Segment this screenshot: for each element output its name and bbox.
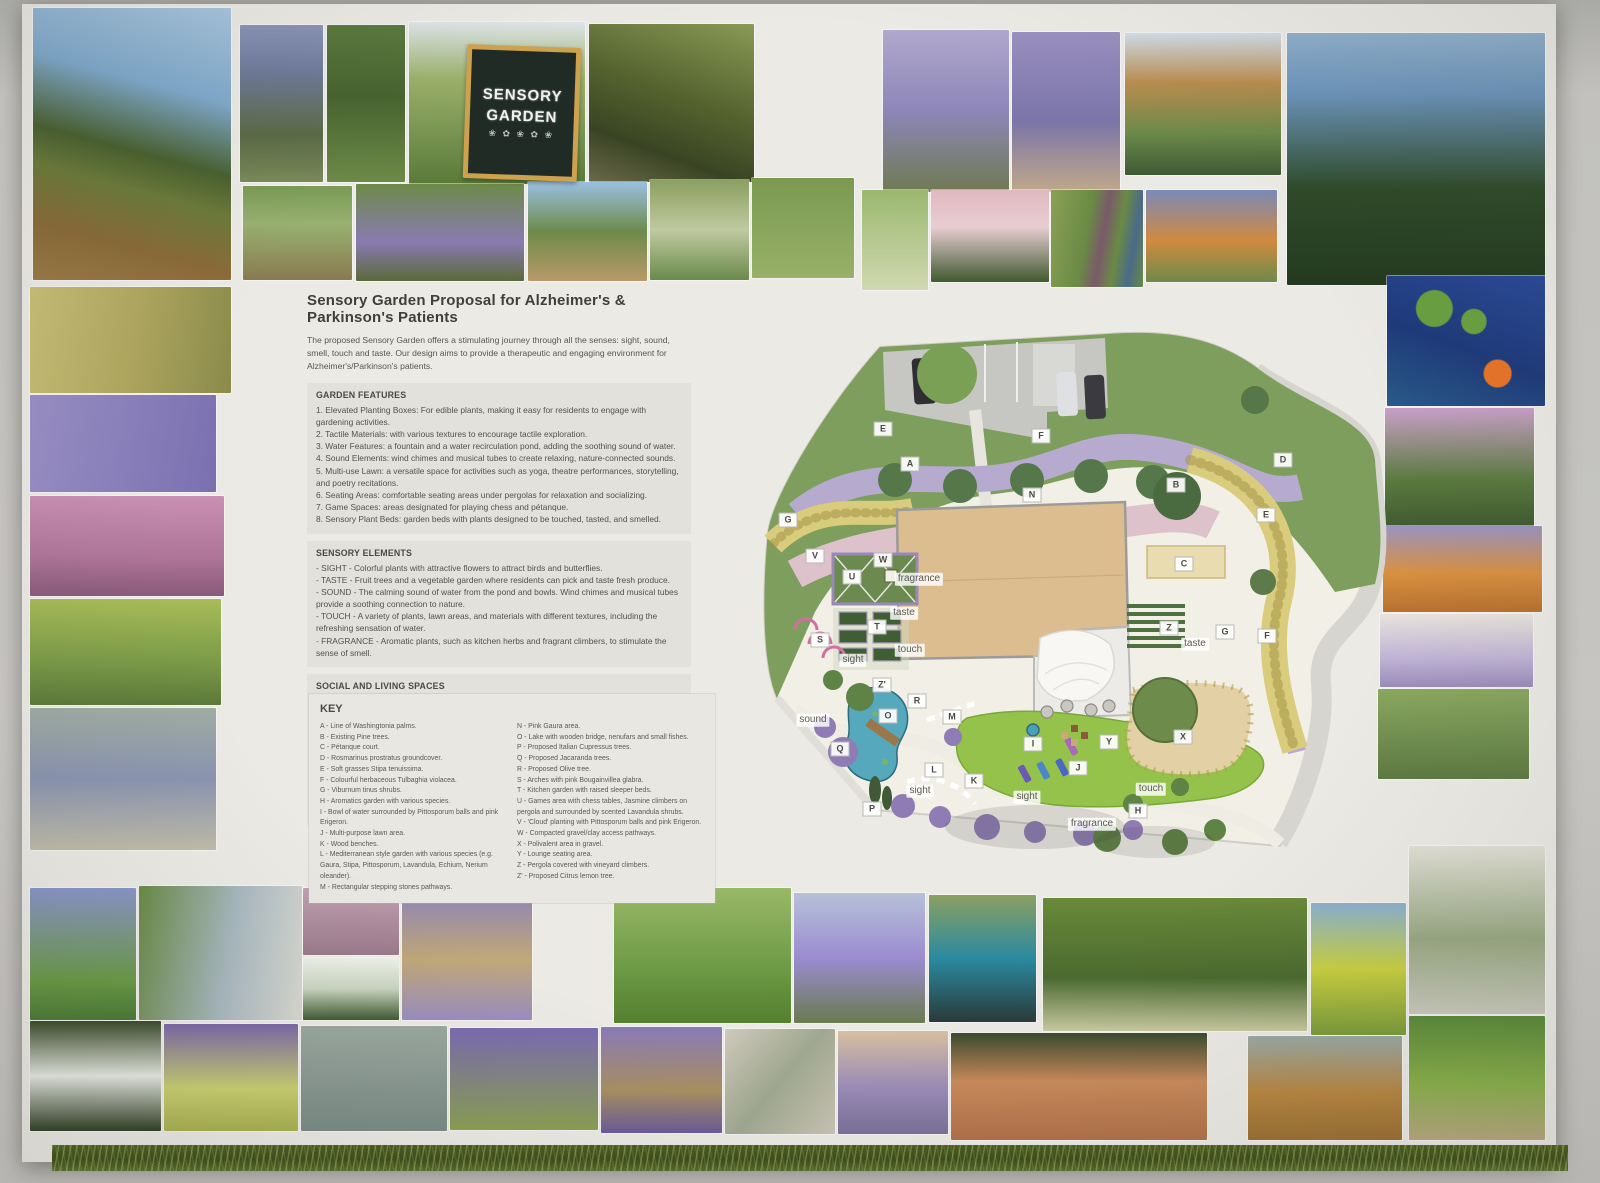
plan-label-G: G — [1216, 625, 1235, 640]
list-item: P - Proposed Italian Cupressus trees. — [517, 743, 704, 754]
list-item: SIGHT - Colorful plants with attractive … — [316, 562, 682, 574]
plan-sense-label-sight: sight — [1013, 791, 1040, 804]
list-item: 5. Multi-use Lawn: a versatile space for… — [316, 465, 682, 489]
lavender-field-rows-photo — [838, 1031, 948, 1134]
flower-planter-photo — [1146, 190, 1277, 282]
list-item: J - Multi-purpose lawn area. — [320, 829, 507, 840]
plan-sense-label-sight: sight — [906, 785, 933, 798]
citrus-orchard-bench-photo — [1043, 898, 1307, 1031]
mounded-garden-photo — [1378, 689, 1529, 779]
touching-lavender-photo — [1012, 32, 1120, 192]
petanque-court-photo — [951, 1033, 1207, 1140]
sensory-garden-chalkboard: SENSORY GARDEN ❀ ✿ ❀ ✿ ❀ — [463, 44, 582, 182]
garden-features-heading: GARDEN FEATURES — [316, 390, 682, 400]
list-item: R - Proposed Olive tree. — [517, 765, 704, 776]
plan-label-B: B — [1167, 478, 1186, 493]
list-item: 2. Tactile Materials: with various textu… — [316, 428, 682, 440]
plan-sense-label-sight: sight — [839, 654, 866, 667]
chalk-plants-doodle: ❀ ✿ ❀ ✿ ❀ — [488, 127, 554, 140]
sensory-elements-heading: SENSORY ELEMENTS — [316, 548, 682, 558]
list-item: SOUND - The calming sound of water from … — [316, 586, 682, 610]
list-item: X - Polivalent area in gravel. — [517, 840, 704, 851]
lemons-closeup-photo — [1311, 903, 1406, 1035]
site-plan: EAFNBDECVWUTSGZGFZ'ROMQLKIYJXHPfragrance… — [735, 282, 1395, 874]
lavender-dome-photo — [1380, 614, 1533, 687]
list-item: O - Lake with wooden bridge, nenufars an… — [517, 733, 704, 744]
list-item: 7. Game Spaces: areas designated for pla… — [316, 501, 682, 513]
agapanthus-photo — [30, 888, 136, 1020]
jasmine-flowers-photo — [303, 958, 399, 1020]
elevated-planter-boxes-photo — [528, 182, 647, 281]
vegetable-beds-photo — [1409, 1016, 1545, 1140]
pergola-lakeside-photo — [1125, 33, 1281, 175]
plan-label-E: E — [1257, 508, 1276, 523]
list-item: 3. Water Features: a fountain and a wate… — [316, 440, 682, 452]
plan-sense-label-touch: touch — [1136, 783, 1166, 796]
stipa-grass-photo — [30, 287, 231, 393]
list-item: 1. Elevated Planting Boxes: For edible p… — [316, 404, 682, 428]
plan-sense-label-taste: taste — [890, 607, 918, 620]
plan-label-Z: Z — [1160, 621, 1179, 636]
site-plan-drawing — [735, 282, 1395, 872]
list-item: 6. Seating Areas: comfortable seating ar… — [316, 489, 682, 501]
mound-shrubs-photo — [30, 599, 221, 705]
list-item: TOUCH - A variety of plants, lawn areas,… — [316, 610, 682, 634]
plan-label-N: N — [1023, 488, 1042, 503]
plan-label-A: A — [901, 457, 920, 472]
raised-beds-photo — [589, 24, 754, 182]
pond-meadow-photo — [752, 178, 854, 278]
water-bowl-iris-photo — [240, 25, 323, 182]
social-living-heading: SOCIAL AND LIVING SPACES — [316, 681, 682, 691]
key-column-2: N - Pink Gaura area.O - Lake with wooden… — [517, 722, 704, 893]
plan-sense-label-fragrance: fragrance — [1068, 818, 1116, 831]
plan-label-X: X — [1174, 730, 1193, 745]
plan-sense-label-fragrance: fragrance — [895, 573, 943, 586]
list-item: T - Kitchen garden with raised sleeper b… — [517, 786, 704, 797]
white-hedge-photo — [30, 1021, 161, 1131]
footer-wave-graphic — [52, 1145, 1568, 1171]
list-item: E - Soft grasses Stipa tenuissima. — [320, 765, 507, 776]
plan-label-Y: Y — [1100, 735, 1119, 750]
pink-heather-photo — [30, 496, 224, 596]
plan-label-T: T — [868, 620, 887, 635]
list-item: M - Rectangular stepping stones pathways… — [320, 883, 507, 894]
plan-label-R: R — [908, 694, 927, 709]
plan-sense-label-taste: taste — [1181, 638, 1209, 651]
lavender-closeup-photo — [30, 395, 216, 492]
plan-label-Z-prime: Z' — [873, 678, 892, 693]
poster: SENSORY GARDEN ❀ ✿ ❀ ✿ ❀ Sensory Garden … — [22, 4, 1556, 1162]
chalkboard-line-2: GARDEN — [486, 106, 558, 125]
garden-features-section: GARDEN FEATURES 1. Elevated Planting Box… — [307, 383, 691, 534]
stipa-salvia-photo — [164, 1024, 298, 1131]
plan-key-legend: KEY A - Line of Washingtonia palms.B - E… — [309, 694, 715, 903]
gardening-planters-photo — [243, 186, 352, 280]
list-item: G - Viburnum tinus shrubs. — [320, 786, 507, 797]
lavender-path-photo — [402, 886, 532, 1020]
glass-wind-chimes-photo — [1051, 190, 1143, 287]
list-item: 8. Sensory Plant Beds: garden beds with … — [316, 513, 682, 525]
westringia-shrub-photo — [301, 1026, 447, 1131]
plan-sense-label-sound: sound — [796, 714, 829, 727]
meadow-flowers-photo — [650, 180, 749, 280]
plan-label-K: K — [965, 774, 984, 789]
plan-label-L: L — [925, 763, 944, 778]
plan-label-F: F — [1032, 429, 1051, 444]
plan-label-E: E — [874, 422, 893, 437]
plan-label-U: U — [843, 570, 862, 585]
plan-label-C: C — [1175, 557, 1194, 572]
list-item: H - Aromatics garden with various specie… — [320, 797, 507, 808]
rose-arch-tunnel-photo — [1385, 408, 1534, 528]
chalkboard-line-1: SENSORY — [482, 85, 562, 105]
plan-sense-label-touch: touch — [895, 644, 925, 657]
key-heading: KEY — [320, 703, 704, 715]
koi-pond-photo — [1387, 276, 1545, 406]
plan-label-O: O — [879, 709, 898, 724]
intro-paragraph: The proposed Sensory Garden offers a sti… — [307, 334, 691, 373]
jacaranda-tree-photo — [794, 893, 925, 1023]
santolina-gravel-photo — [30, 708, 216, 850]
seniors-yoga-photo — [614, 888, 791, 1023]
key-column-1: A - Line of Washingtonia palms.B - Exist… — [320, 722, 507, 893]
cypress-trees-photo — [1287, 33, 1545, 285]
kniphofia-flowers-photo — [1383, 526, 1542, 612]
stone-slab-path-photo — [725, 1029, 835, 1134]
list-item: W - Compacted gravel/clay access pathway… — [517, 829, 704, 840]
list-item: S - Arches with pink Bougainvillea glabr… — [517, 776, 704, 787]
butterfly-meadow-photo — [862, 190, 928, 290]
plan-label-F: F — [1258, 629, 1277, 644]
list-item: Z - Pergola covered with vineyard climbe… — [517, 861, 704, 872]
plan-label-G: G — [779, 513, 798, 528]
list-item: L - Mediterranean style garden with vari… — [320, 850, 507, 882]
list-item: B - Existing Pine trees. — [320, 733, 507, 744]
palm-tree-photo — [33, 8, 231, 280]
list-item: C - Pétanque court. — [320, 743, 507, 754]
list-item: Y - Lounge seating area. — [517, 850, 704, 861]
list-item: F - Colourful herbaceous Tulbaghia viola… — [320, 776, 507, 787]
wind-chime-photo — [327, 25, 405, 182]
sensory-elements-section: SENSORY ELEMENTS SIGHT - Colorful plants… — [307, 541, 691, 668]
list-item: I - Bowl of water surrounded by Pittospo… — [320, 808, 507, 829]
delphinium-garden-photo — [450, 1028, 598, 1130]
list-item: A - Line of Washingtonia palms. — [320, 722, 507, 733]
blue-water-bowl-photo — [929, 895, 1036, 1022]
plan-label-V: V — [806, 549, 825, 564]
plan-label-M: M — [943, 710, 962, 725]
olive-tree-photo — [1409, 846, 1545, 1014]
bench-lavender-photo — [601, 1027, 722, 1133]
list-item: U - Games area with chess tables, Jasmin… — [517, 797, 704, 818]
garden-features-list: 1. Elevated Planting Boxes: For edible p… — [316, 404, 682, 526]
list-item: D - Rosmarinus prostratus groundcover. — [320, 754, 507, 765]
sensory-elements-list: SIGHT - Colorful plants with attractive … — [316, 562, 682, 660]
list-item: N - Pink Gaura area. — [517, 722, 704, 733]
list-item: FRAGRANCE - Aromatic plants, such as kit… — [316, 635, 682, 659]
list-item: Q - Proposed Jacaranda trees. — [517, 754, 704, 765]
plan-label-W: W — [874, 553, 893, 568]
plan-label-J: J — [1069, 761, 1088, 776]
list-item: 4. Sound Elements: wind chimes and music… — [316, 452, 682, 464]
pink-roses-photo — [931, 190, 1049, 282]
plan-label-I: I — [1024, 737, 1043, 752]
photographed-poster-board: { "poster": { "title": "Sensory Garden P… — [0, 0, 1600, 1183]
page-title: Sensory Garden Proposal for Alzheimer's … — [307, 292, 691, 326]
plan-label-S: S — [811, 633, 830, 648]
plan-label-Q: Q — [831, 742, 850, 757]
list-item: TASTE - Fruit trees and a vegetable gard… — [316, 574, 682, 586]
list-item: K - Wood benches. — [320, 840, 507, 851]
list-item: V - 'Cloud' planting with Pittosporum ba… — [517, 818, 704, 829]
chess-table-chairs-photo — [1248, 1036, 1402, 1140]
list-item: Z' - Proposed Citrus lemon tree. — [517, 872, 704, 883]
bench-salvia-photo — [356, 184, 524, 281]
smelling-lavender-photo — [883, 30, 1009, 192]
woman-playing-chimes-photo — [139, 886, 302, 1020]
plan-label-D: D — [1274, 453, 1293, 468]
plan-label-H: H — [1129, 804, 1148, 819]
plan-label-P: P — [863, 802, 882, 817]
